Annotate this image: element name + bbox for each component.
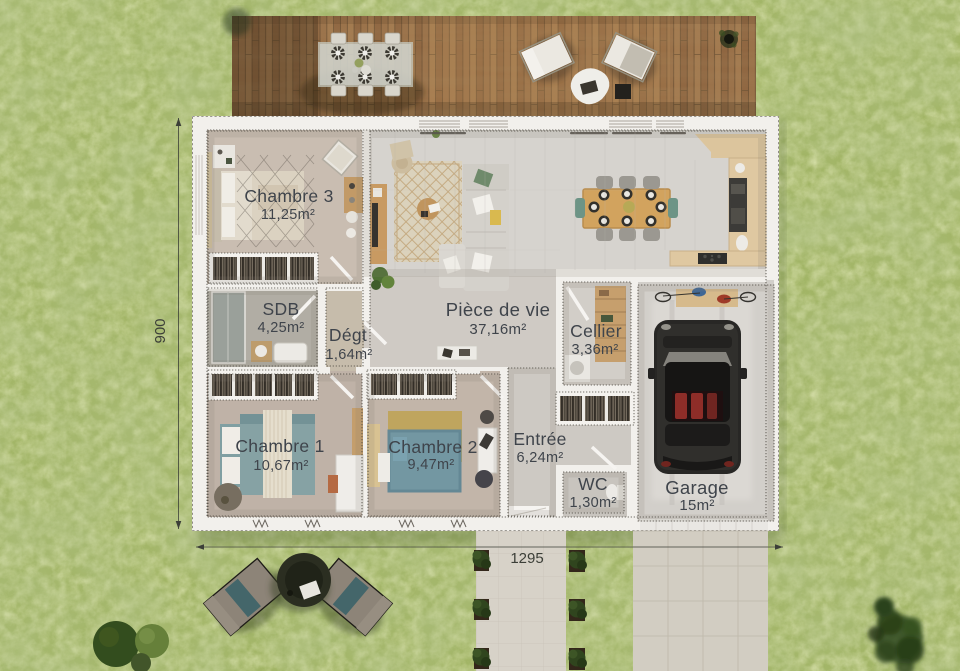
svg-text:9,47m²: 9,47m² [408, 457, 455, 473]
svg-text:WC: WC [578, 474, 608, 494]
svg-text:Dégt: Dégt [329, 325, 367, 345]
svg-text:11,25m²: 11,25m² [261, 207, 315, 223]
svg-text:SDB: SDB [263, 299, 300, 319]
svg-text:1295: 1295 [510, 550, 543, 567]
svg-text:Entrée: Entrée [513, 429, 566, 449]
svg-text:1,64m²: 1,64m² [326, 347, 373, 363]
svg-text:Garage: Garage [665, 477, 729, 498]
svg-text:Chambre 3: Chambre 3 [244, 186, 333, 206]
svg-text:Pièce de vie: Pièce de vie [446, 299, 550, 320]
svg-text:Chambre 2: Chambre 2 [388, 437, 477, 457]
svg-text:15m²: 15m² [679, 497, 714, 514]
svg-text:10,67m²: 10,67m² [253, 458, 308, 474]
svg-text:6,24m²: 6,24m² [517, 450, 564, 466]
svg-text:4,25m²: 4,25m² [258, 320, 305, 336]
svg-text:1,30m²: 1,30m² [570, 495, 617, 511]
svg-text:3,36m²: 3,36m² [572, 342, 619, 358]
svg-text:900: 900 [152, 318, 169, 343]
svg-text:Chambre 1: Chambre 1 [235, 436, 324, 456]
svg-text:37,16m²: 37,16m² [469, 321, 526, 338]
svg-text:Cellier: Cellier [570, 321, 622, 341]
